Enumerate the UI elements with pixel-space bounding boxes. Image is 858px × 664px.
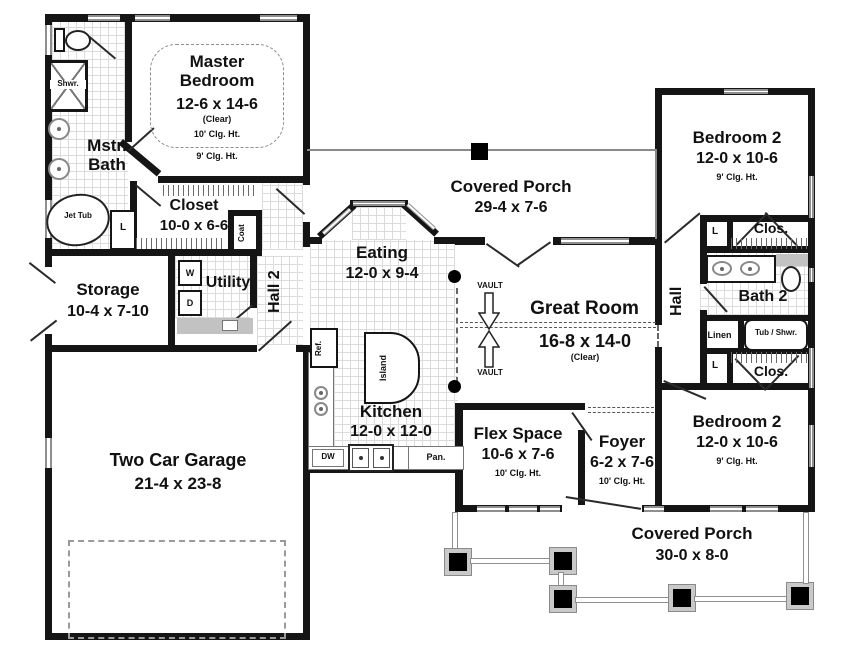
bed2b-dims: 12-0 x 10-6: [668, 434, 806, 452]
master-bedroom-ceiling: 10' Clg. Ht.: [160, 129, 274, 139]
master-bath-name: Mstr. Bath: [70, 136, 144, 174]
vault-label-bottom: VAULT: [468, 369, 512, 378]
window-right-3: [809, 348, 814, 388]
vault-label-top: VAULT: [468, 282, 512, 291]
greatroom-window: [561, 238, 629, 244]
dryer-label: D: [178, 298, 202, 308]
closet-rod-top: [163, 185, 255, 196]
jet-tub-label: Jet Tub: [56, 212, 100, 221]
french-door-leaf-right: [517, 241, 551, 266]
storage-name: Storage: [54, 280, 162, 299]
foyer-name: Foyer: [584, 432, 660, 451]
porch-top-dims: 29-4 x 7-6: [440, 199, 582, 217]
hall-name: Hall: [668, 265, 692, 337]
utility-sink: [222, 320, 238, 331]
porch-bottom-name: Covered Porch: [600, 524, 784, 543]
wall-coat-right: [256, 210, 262, 256]
porch-top-name: Covered Porch: [425, 177, 597, 196]
bed2a-ceiling: 9' Clg. Ht.: [680, 172, 794, 182]
wall-greatroom-north-a: [455, 237, 485, 245]
kitchen-dims: 12-0 x 12-0: [334, 423, 448, 441]
closet-name: Closet: [146, 197, 242, 215]
french-door-leaf-left: [486, 243, 520, 268]
kitchen-double-sink: [348, 444, 394, 472]
foyer-dims: 6-2 x 7-6: [580, 454, 664, 472]
flex-dims: 10-6 x 7-6: [464, 446, 572, 464]
linen-small-top-label: L: [704, 226, 726, 237]
kitchen-sink-2: [314, 402, 328, 416]
master-bedroom-dims: 12-6 x 14-6: [160, 96, 274, 114]
window-top-1: [88, 15, 120, 21]
greatroom-column-bottom: [448, 380, 461, 393]
bay-window-left: [322, 208, 351, 235]
clos-bottom-rod: [731, 352, 807, 363]
porch-rail-left: [452, 512, 458, 552]
wall-storage-left-stub1: [45, 257, 52, 267]
closet-rod-bottom: [136, 238, 224, 249]
porch-post-5: [787, 583, 813, 609]
master-bedroom-ceiling2: 9' Clg. Ht.: [160, 151, 274, 161]
wall-garage-top-b: [296, 345, 310, 352]
window-flex-2: [509, 506, 537, 512]
window-bed2b-1: [710, 506, 742, 512]
wall-bath-bedroom-divider: [125, 20, 132, 142]
storage-dims: 10-4 x 7-10: [50, 303, 166, 321]
island-label: Island: [378, 344, 400, 392]
wall-master-right-upper: [303, 14, 310, 185]
bath2-ledge: [776, 254, 808, 266]
sink-basin-left: [352, 448, 369, 468]
wall-closet-top: [158, 176, 305, 183]
bed2a-name: Bedroom 2: [664, 128, 810, 147]
great-room-name: Great Room: [492, 298, 677, 319]
window-right-2: [809, 268, 814, 282]
garage-name: Two Car Garage: [88, 450, 268, 470]
wall-storage-top: [45, 249, 262, 256]
utility-name: Utility: [197, 274, 259, 292]
window-foyer-side-1: [540, 506, 560, 512]
window-flex-1: [477, 506, 505, 512]
kitchen-sink-1: [314, 386, 328, 400]
window-right-1: [809, 176, 814, 218]
bed2b-ceiling: 9' Clg. Ht.: [680, 456, 794, 466]
clos-bottom-label: Clos.: [733, 364, 809, 380]
foyer-ceiling: 10' Clg. Ht.: [582, 476, 662, 486]
utility-counter: [177, 318, 253, 334]
bay-window-top: [353, 201, 405, 206]
bath-sink-2: [48, 158, 70, 180]
bath-sink-1: [48, 118, 70, 140]
floor-plan: VAULT VAULT Shwr. Jet Tub L W D Ref. Isl…: [0, 0, 858, 664]
bed2a-door-leaf: [664, 212, 701, 243]
wall-garage-left-b: [45, 468, 52, 640]
garage-door-outline: [68, 540, 286, 639]
kitchen-name: Kitchen: [338, 402, 444, 421]
garage-dims: 21-4 x 23-8: [110, 474, 246, 493]
clos-top-label: Clos.: [733, 221, 809, 237]
great-room-note: (Clear): [500, 352, 670, 362]
eating-bay-floor: [352, 207, 406, 240]
window-right-4: [809, 425, 814, 467]
eating-dims: 12-0 x 9-4: [325, 265, 439, 283]
bath2-sink-1: [712, 261, 732, 276]
closet-dims: 10-0 x 6-6: [138, 218, 250, 235]
porch-bottom-dims: 30-0 x 8-0: [622, 547, 762, 565]
porch-rail-3: [694, 596, 790, 602]
linen-closet-master-label: L: [112, 222, 134, 233]
greatroom-left-dashed: [456, 288, 458, 383]
window-top-3: [260, 15, 297, 21]
master-bedroom-name: Master Bedroom: [160, 52, 274, 90]
porch-post-2: [550, 548, 576, 574]
toilet-tank: [54, 28, 65, 52]
porch-post-4: [669, 585, 695, 611]
porch-post-square: [471, 143, 488, 160]
flex-ceiling: 10' Clg. Ht.: [470, 468, 566, 478]
eating-name: Eating: [330, 243, 434, 262]
porch-post-1: [445, 549, 471, 575]
bay-window-right: [406, 203, 435, 230]
hall2-name: Hall 2: [266, 252, 290, 332]
fridge-label: Ref.: [314, 332, 334, 364]
dishwasher-label: DW: [312, 453, 344, 462]
foyer-opening-dashed: [588, 407, 654, 413]
window-garage-left: [45, 438, 52, 468]
bed2b-name: Bedroom 2: [664, 412, 810, 431]
linen-small-bottom-label: L: [704, 360, 726, 371]
great-room-dims: 16-8 x 14-0: [500, 331, 670, 351]
wall-flex-top: [455, 403, 585, 410]
coat-label: Coat: [237, 214, 255, 252]
window-left-1: [45, 25, 52, 55]
greatroom-column-top: [448, 270, 461, 283]
window-top-2: [135, 15, 170, 21]
storage-door-leaf-2: [30, 320, 57, 342]
window-bed2a-top: [724, 89, 768, 94]
toilet-bowl: [65, 30, 91, 51]
window-bed2b-2: [746, 506, 778, 512]
porch-rail-1: [470, 558, 552, 564]
sink-basin-right: [373, 448, 390, 468]
porch-rail-2: [575, 597, 671, 603]
wall-storage-utility: [168, 256, 175, 352]
shower-label: Shwr.: [50, 80, 86, 89]
porch-top-right-edge: [655, 149, 657, 239]
bath2-name: Bath 2: [726, 288, 800, 306]
vault-arrow-up-icon: [478, 330, 500, 368]
wall-garage-left-a: [45, 352, 52, 438]
clos-top-rod: [731, 238, 807, 249]
porch-post-3: [550, 586, 576, 612]
linen-label: Linen: [701, 330, 738, 340]
window-foyer-side-2: [644, 506, 664, 512]
master-bedroom-note: (Clear): [160, 114, 274, 124]
wall-garage-top-a: [45, 345, 257, 352]
flex-name: Flex Space: [460, 424, 576, 443]
tub-shower-label: Tub / Shwr.: [746, 329, 806, 338]
pantry-label: Pan.: [408, 452, 464, 462]
bath2-sink-2: [740, 261, 760, 276]
porch-rail-right: [803, 512, 809, 584]
bed2a-dims: 12-0 x 10-6: [668, 150, 806, 168]
